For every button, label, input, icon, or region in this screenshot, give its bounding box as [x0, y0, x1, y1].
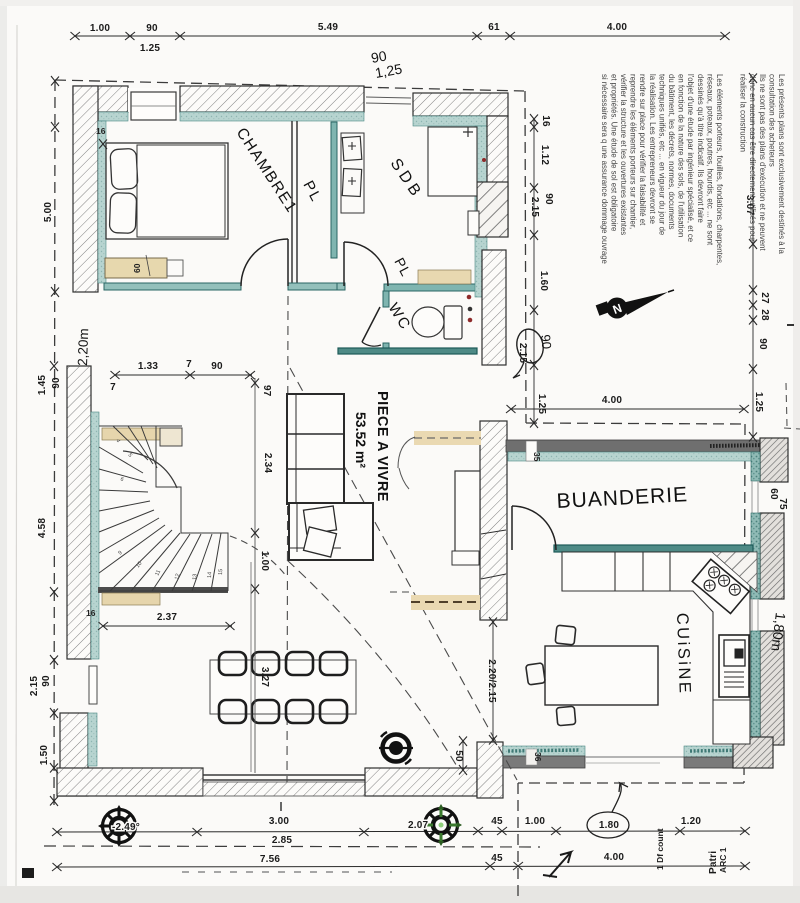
svg-text:rendre sur place pour vérifier: rendre sur place pour vérifier la faisab… [638, 74, 647, 226]
svg-text:1.80: 1.80 [599, 820, 620, 831]
svg-text:donc en aucun cas être directe: donc en aucun cas être directement utili… [748, 74, 757, 242]
svg-text:27: 27 [759, 292, 770, 304]
svg-text:1.00: 1.00 [525, 816, 546, 827]
svg-text:du bâtiment, les décrets, norm: du bâtiment, les décrets, normes, docume… [667, 74, 676, 230]
svg-text:en fonction de la nature des s: en fonction de la nature des sols, de l'… [677, 74, 686, 237]
svg-text:7.56: 7.56 [260, 854, 281, 865]
svg-text:Les éléments porteurs, fouille: Les éléments porteurs, fouilles, fondati… [715, 74, 724, 265]
svg-text:15: 15 [218, 569, 224, 575]
svg-text:1.12: 1.12 [539, 145, 550, 166]
svg-text:vérifier la structure et les o: vérifier la structure et les ouvertures … [619, 74, 628, 235]
svg-text:techniques unifiés, etc ... en: techniques unifiés, etc ... en vigueur d… [657, 74, 666, 235]
svg-text:90: 90 [51, 377, 62, 389]
svg-text:2.15: 2.15 [529, 197, 540, 218]
svg-text:3.00: 3.00 [269, 816, 290, 827]
svg-text:2.34: 2.34 [262, 453, 273, 474]
svg-text:28: 28 [759, 309, 770, 321]
svg-text:1.00: 1.00 [90, 23, 111, 34]
svg-text:5.49: 5.49 [318, 22, 339, 33]
svg-text:1 Df count: 1 Df count [655, 828, 665, 870]
svg-text:2.20/2.15: 2.20/2.15 [486, 659, 497, 703]
svg-text:Ils ne sont pas des plans d'ex: Ils ne sont pas des plans d'exécution et… [758, 74, 767, 251]
svg-text:7: 7 [186, 359, 192, 370]
svg-text:16: 16 [540, 115, 551, 127]
svg-text:Les présents plans sont exclus: Les présents plans sont exclusivement de… [777, 74, 786, 255]
svg-text:16: 16 [96, 126, 106, 136]
svg-text:5.00: 5.00 [43, 202, 54, 223]
svg-text:35: 35 [532, 452, 542, 462]
svg-text:45: 45 [491, 816, 503, 827]
svg-text:90: 90 [146, 23, 158, 34]
svg-text:si nécessaire sera q une assur: si nécessaire sera q une assurance domma… [600, 74, 609, 264]
svg-text:2.85: 2.85 [272, 835, 293, 846]
svg-text:-2.49°: -2.49° [112, 822, 140, 833]
svg-text:2,20m: 2,20m [75, 328, 91, 366]
svg-text:60: 60 [132, 263, 142, 273]
svg-text:dessinés qu'à titre indicatif.: dessinés qu'à titre indicatif. Ils devro… [696, 74, 705, 223]
svg-text:4.00: 4.00 [602, 395, 623, 406]
svg-text:90: 90 [41, 675, 52, 687]
svg-text:53.52 m²: 53.52 m² [353, 412, 369, 468]
svg-text:7: 7 [110, 382, 116, 393]
svg-text:1.50: 1.50 [39, 745, 50, 766]
svg-text:1.25: 1.25 [536, 394, 547, 415]
svg-text:90: 90 [211, 361, 223, 372]
svg-text:1.25: 1.25 [753, 392, 764, 413]
svg-text:1.45: 1.45 [37, 375, 48, 396]
svg-text:2.37: 2.37 [157, 612, 178, 623]
svg-text:réaliser la construction: réaliser la construction [739, 74, 748, 152]
svg-text:3.27: 3.27 [259, 667, 270, 688]
svg-text:la réalisation. Les entreprene: la réalisation. Les entrepreneurs devron… [648, 74, 657, 224]
svg-text:l'objet d'une étude par ingéni: l'objet d'une étude par ingénieur spécia… [686, 74, 695, 242]
svg-text:4.58: 4.58 [37, 518, 48, 539]
svg-text:1.33: 1.33 [138, 361, 159, 372]
svg-text:PIECE A VIVRE: PIECE A VIVRE [374, 391, 390, 502]
svg-text:16: 16 [86, 608, 96, 618]
svg-text:2.07: 2.07 [408, 820, 429, 831]
svg-text:75: 75 [777, 498, 788, 510]
svg-text:consultation des acheteurs: consultation des acheteurs [767, 74, 776, 167]
svg-text:13: 13 [192, 574, 199, 581]
svg-text:90: 90 [543, 193, 554, 205]
svg-text:ARC 1: ARC 1 [718, 847, 728, 873]
svg-text:et propriétés. Une étude de so: et propriétés. Une étude de sol est obli… [609, 74, 618, 231]
svg-text:1.20: 1.20 [681, 816, 702, 827]
svg-text:1.25: 1.25 [140, 43, 161, 54]
svg-text:36: 36 [533, 752, 543, 762]
svg-text:90: 90 [757, 338, 768, 350]
svg-text:4.00: 4.00 [607, 22, 628, 33]
svg-text:61: 61 [488, 22, 500, 33]
svg-text:reprendre les éléments porteur: reprendre les éléments porteurs sur chan… [629, 74, 638, 229]
svg-text:CUiSiNE: CUiSiNE [673, 613, 694, 696]
svg-text:45: 45 [491, 853, 503, 864]
svg-text:2.15: 2.15 [29, 676, 40, 697]
svg-text:4.00: 4.00 [604, 852, 625, 863]
svg-text:1.60: 1.60 [538, 271, 549, 292]
svg-text:1.00: 1.00 [259, 551, 270, 572]
svg-text:90: 90 [538, 334, 554, 350]
svg-text:50: 50 [453, 750, 464, 762]
svg-text:97: 97 [261, 385, 272, 397]
svg-text:14: 14 [207, 572, 213, 578]
svg-text:réseaux, poteaux, poutres, hou: réseaux, poteaux, poutres, hourdis, etc … [705, 74, 714, 246]
